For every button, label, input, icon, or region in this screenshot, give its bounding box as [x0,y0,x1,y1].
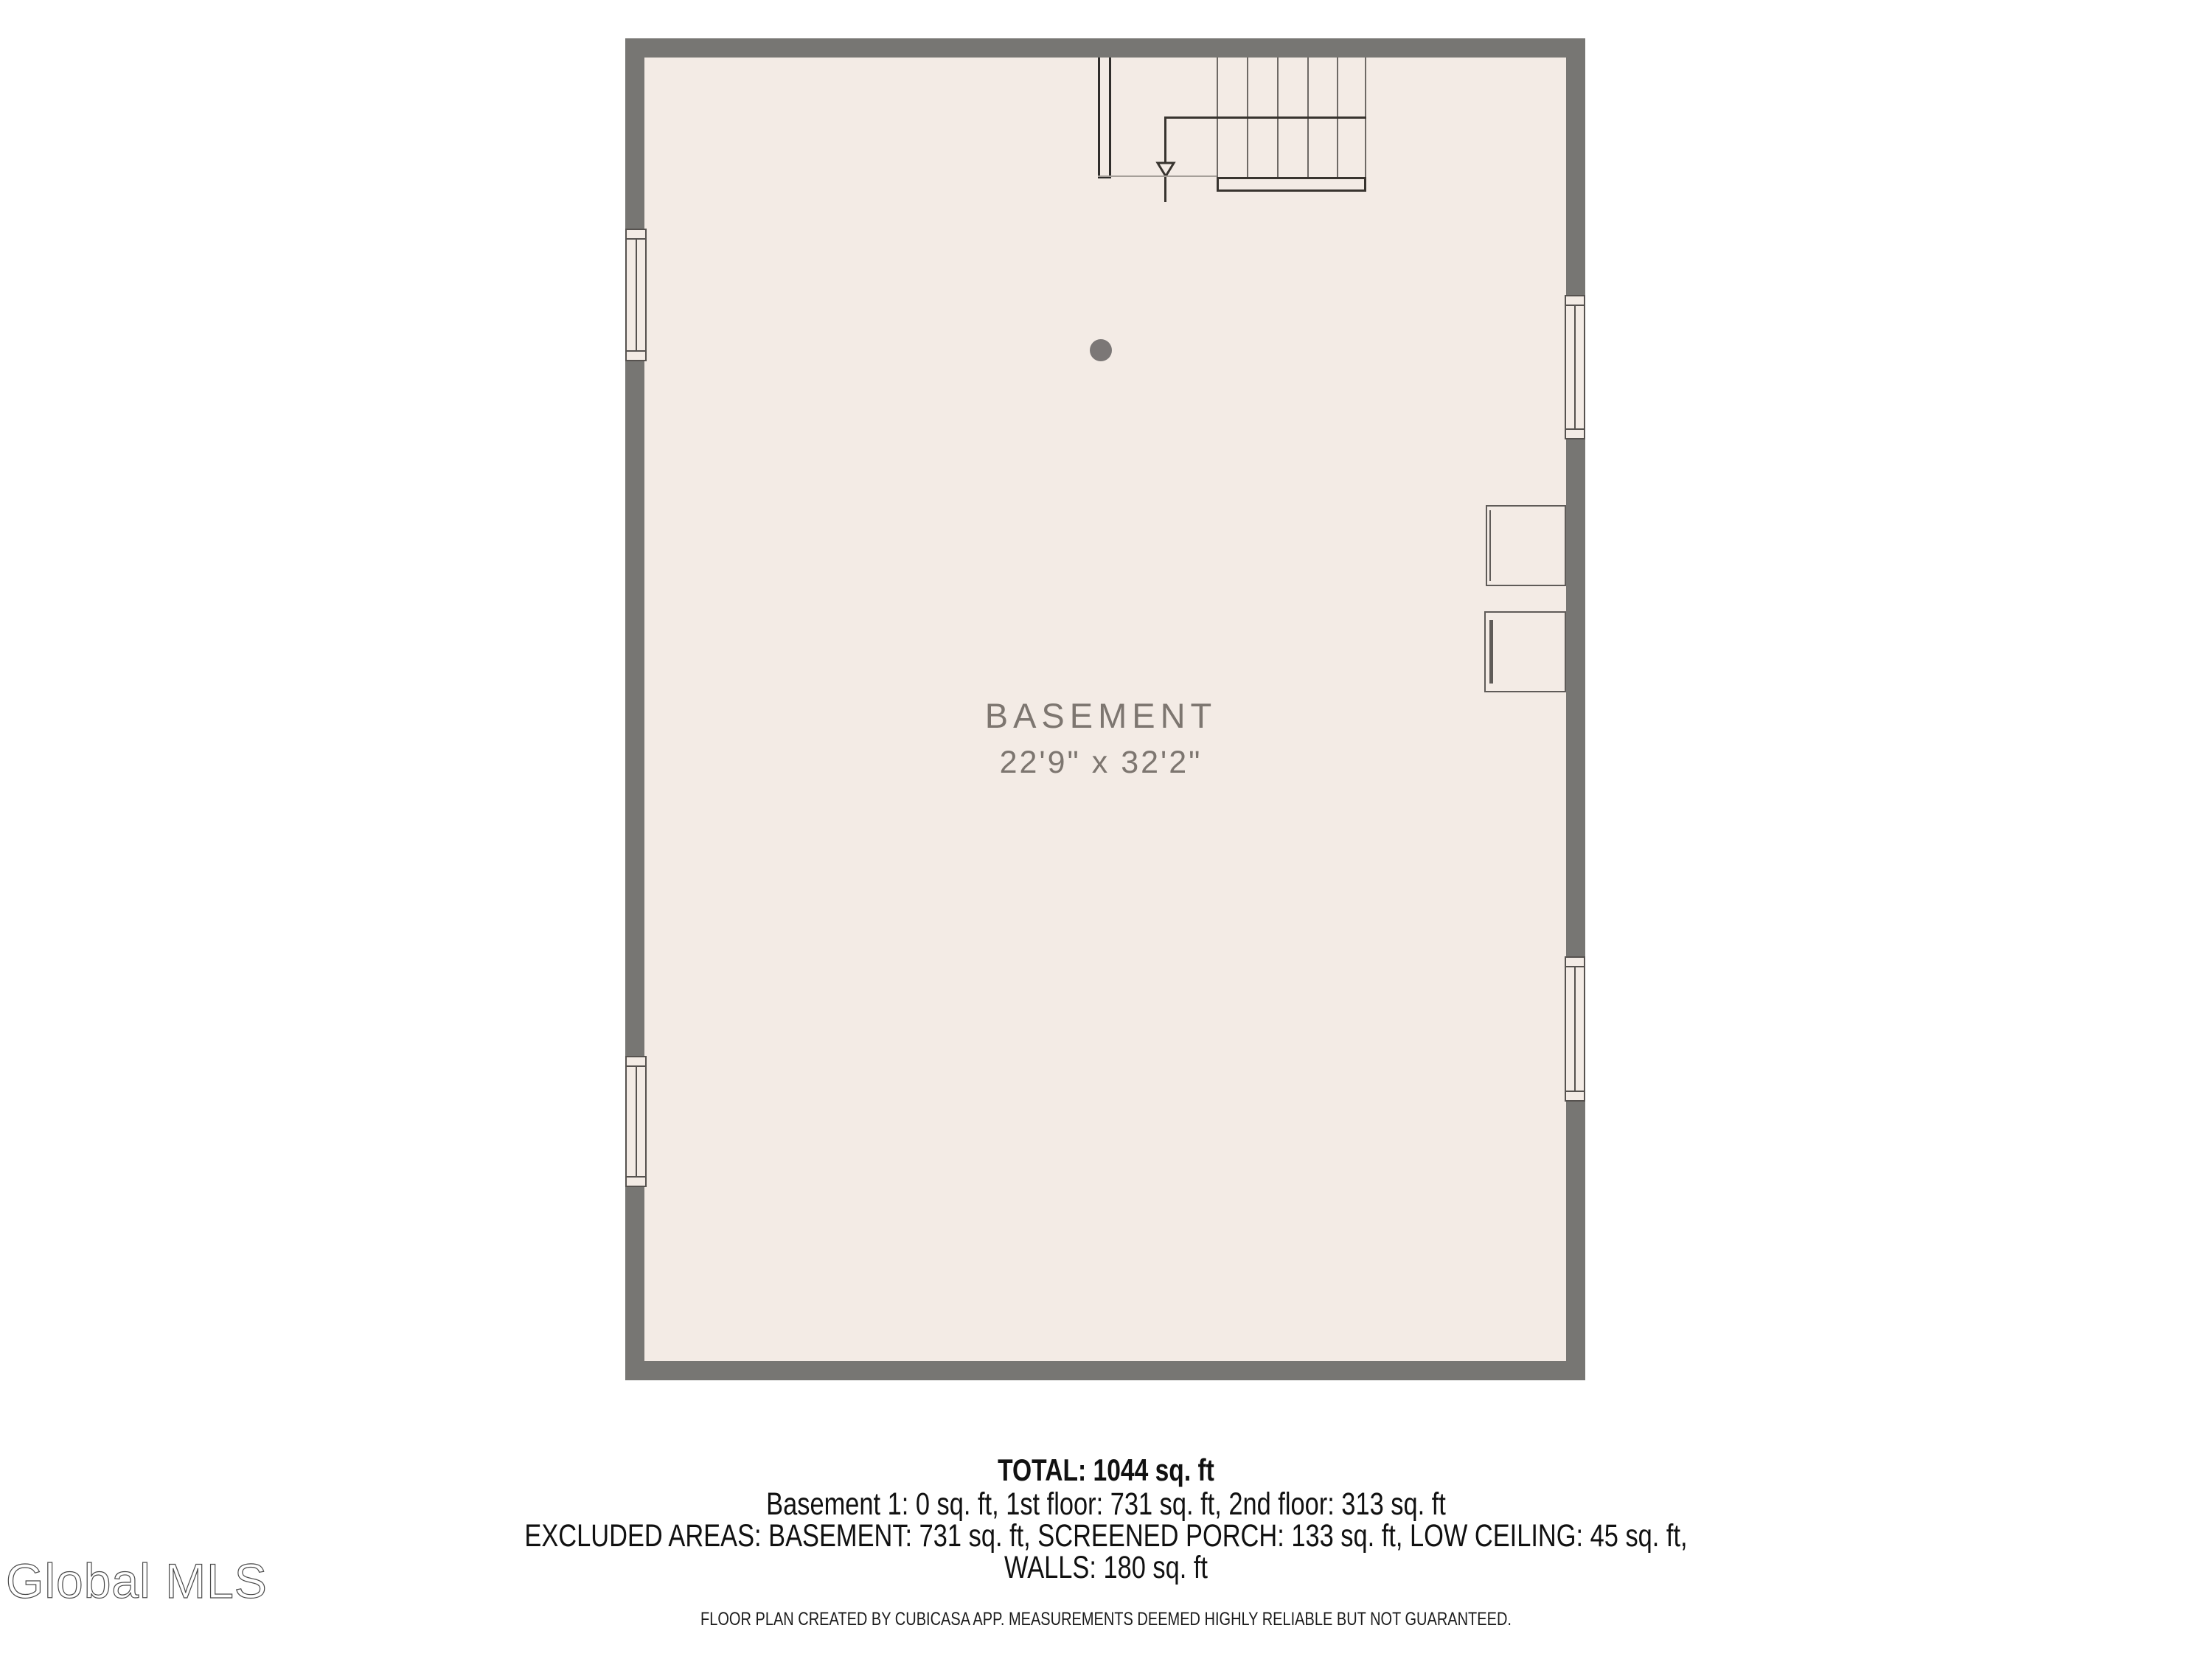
appliance-symbol-upper [1486,505,1566,586]
basement-floor-plan: BASEMENT 22'9" x 32'2" [625,38,1585,1380]
stair-landing [1217,177,1366,192]
room-label: BASEMENT 22'9" x 32'2" [640,695,1562,781]
room-dimensions: 22'9" x 32'2" [640,745,1562,781]
appliance-detail-line [1489,510,1491,581]
window-mullion-line [1574,967,1576,1091]
stair-direction-arrow-shaft [1164,116,1166,202]
window-sill-line [627,350,645,352]
window-mullion-line [636,1067,637,1176]
window-sill-line [1566,1091,1584,1092]
floor-areas-text: Basement 1: 0 sq. ft, 1st floor: 731 sq.… [221,1489,1991,1520]
stair-run-line [1164,116,1366,119]
window-sill-line [1566,428,1584,430]
total-area-text: TOTAL: 1044 sq. ft [221,1454,1991,1486]
window-mullion-line [1574,306,1576,428]
disclaimer-text: FLOOR PLAN CREATED BY CUBICASA APP. MEAS… [221,1609,1991,1630]
excluded-areas-text-2: WALLS: 180 sq. ft [221,1552,1991,1584]
room-name: BASEMENT [640,695,1562,736]
stair-edge-line [1098,175,1217,177]
window-symbol-left-lower [625,1056,647,1187]
stair-side-wall [1098,58,1111,178]
global-mls-watermark: Global MLS [6,1553,268,1609]
window-symbol-right-lower [1565,956,1585,1102]
area-summary: TOTAL: 1044 sq. ft Basement 1: 0 sq. ft,… [221,1454,1991,1630]
window-mullion-line [636,240,637,350]
excluded-areas-text: EXCLUDED AREAS: BASEMENT: 731 sq. ft, SC… [221,1520,1991,1552]
ceiling-light-dot [1090,339,1112,361]
appliance-detail-line [1489,620,1493,684]
floor-plan-page: BASEMENT 22'9" x 32'2" TOTAL: 1044 sq. f… [0,0,2212,1659]
window-sill-line [627,1176,645,1178]
window-symbol-right-upper [1565,295,1585,439]
appliance-symbol-lower [1484,611,1566,692]
window-symbol-left-upper [625,229,647,361]
